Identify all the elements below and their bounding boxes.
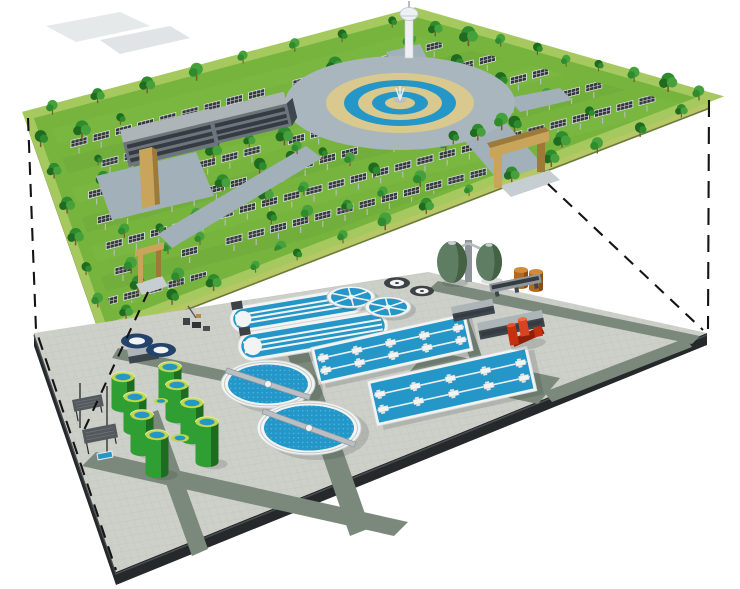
west-wall	[139, 147, 160, 209]
covered-tank-hatch	[154, 347, 169, 354]
scene-svg	[0, 0, 740, 589]
ground-pad-tank	[171, 434, 189, 442]
ground-pad-tank	[154, 398, 168, 404]
projection-line-east	[708, 100, 709, 329]
covered-tank-hatch	[129, 337, 145, 344]
egg-digesters	[437, 240, 503, 287]
small-dark-tank	[384, 277, 410, 289]
cutaway-illustration	[0, 0, 740, 589]
small-dark-tank	[410, 286, 434, 297]
